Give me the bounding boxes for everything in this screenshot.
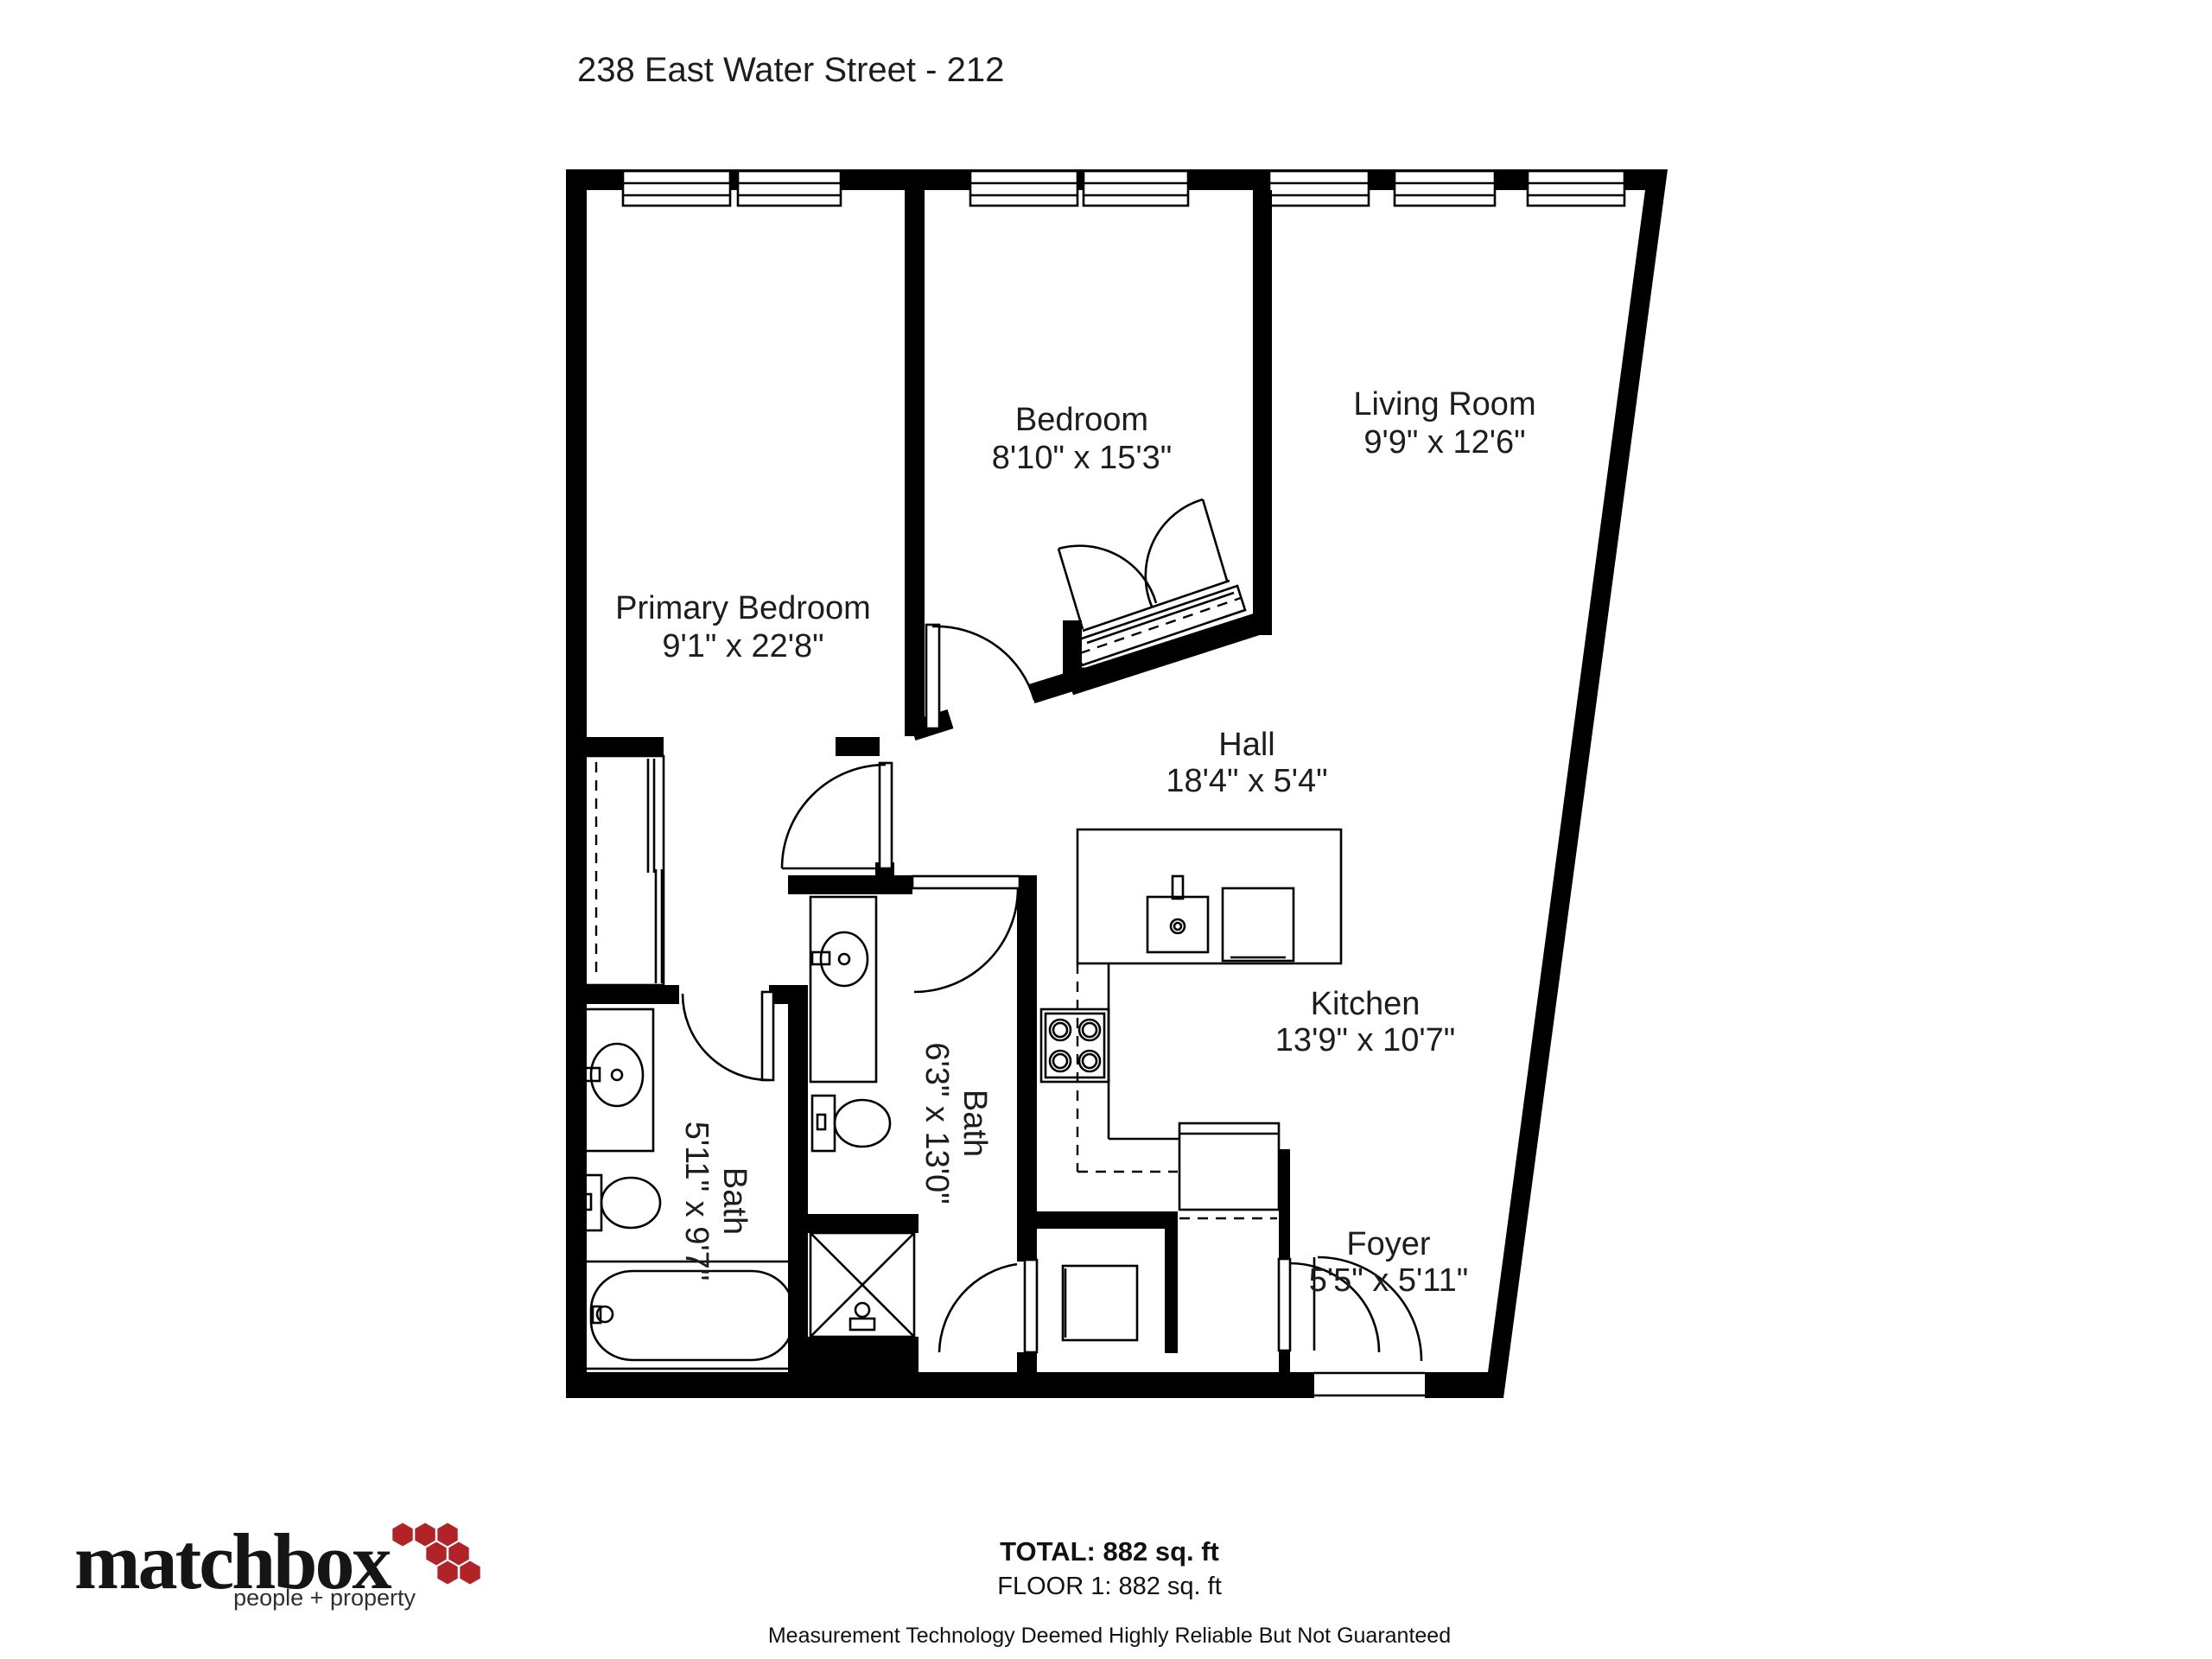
drain-icon [839,954,849,964]
footer-floor: FLOOR 1: 882 sq. ft [997,1573,1222,1600]
logo-tagline: people + property [233,1585,416,1611]
wall-primary-bedroom [905,190,925,736]
foyer-dims: 5'5" x 5'11" [1309,1262,1468,1299]
toilet-icon [601,1178,660,1228]
bedroom-dims: 8'10" x 15'3" [992,440,1172,476]
door-leaf [1025,1260,1037,1352]
logo: matchbox people + property [74,1517,480,1611]
door-arc [914,888,1018,992]
window [738,171,841,206]
hexagon-icon [437,1523,457,1547]
faucet-icon [1173,876,1183,899]
window [1269,171,1369,206]
window [623,171,730,206]
toilet-button [817,1115,825,1129]
door-hall-bath [912,876,1020,992]
door-leaf [762,992,773,1080]
floor-plan-canvas: 238 East Water Street - 212 [0,0,2212,1659]
vanity [810,897,876,1082]
door-arc [1146,499,1203,607]
wall-kitchen-west [1017,1352,1037,1372]
primary-bath-label-group: Bath 5'11" x 9'7" [678,1122,753,1281]
primary-bedroom-dims: 9'1" x 22'8" [662,628,823,664]
wall-foyer-stub [1279,1149,1290,1259]
door-leaf [912,876,1020,888]
wall-hall-bath-north [788,875,912,894]
drain-icon [1174,923,1181,930]
door-arc [782,765,886,868]
kitchen-counter [1077,829,1341,963]
hexagon-icon [460,1561,480,1585]
wall-closet-room-east [1165,1229,1178,1353]
door-leaf [880,763,892,868]
primary-bedroom-label: Primary Bedroom [615,590,871,626]
kitchen-sink-icon [1147,897,1208,952]
plan-title: 238 East Water Street - 212 [577,51,1004,89]
drain-icon [612,1070,622,1080]
door-leaf [1279,1259,1290,1351]
door-leaf-line [1058,549,1083,629]
hall-bath-dims: 6'3" x 13'0" [918,1042,955,1204]
refrigerator-icon [1179,1123,1279,1210]
hexagon-icon [448,1542,468,1566]
door-arc [932,626,1034,700]
drain-icon [1171,919,1185,933]
kitchen-label: Kitchen [1311,986,1421,1022]
toilet-tank [812,1096,835,1151]
door-leaf-line [1203,499,1227,581]
hall-label: Hall [1218,727,1274,763]
sink-icon [821,932,868,986]
wall-bath-top [566,985,679,1004]
window [1528,171,1624,206]
footer-disclaimer: Measurement Technology Deemed Highly Rel… [768,1624,1451,1648]
wall-primary-south [566,737,664,756]
shower-valve-icon [850,1319,874,1330]
hall-dims: 18'4" x 5'4" [1166,763,1327,799]
footer-total: TOTAL: 882 sq. ft [1000,1536,1219,1567]
floor-plan-page: 238 East Water Street - 212 [0,0,2212,1659]
dishwasher [1223,888,1294,961]
door-leaf [926,625,939,728]
door-primary-bedroom [782,763,892,868]
windows [623,171,1624,206]
primary-closet [577,756,664,985]
hexagon-icon [415,1523,435,1547]
living-room-label: Living Room [1353,386,1535,423]
kitchen-dims: 13'9" x 10'7" [1275,1022,1455,1058]
room-labels: Primary Bedroom 9'1" x 22'8" Bedroom 8'1… [615,386,1535,1299]
stove-icon [1041,1009,1109,1082]
wall-primary-south [836,737,880,756]
logo-hexagons-icon [392,1523,480,1585]
wall-bedroom-living [1253,190,1272,635]
wall-kitchen-west [1017,875,1037,1262]
hexagon-icon [392,1523,412,1547]
door-arc [683,994,769,1080]
bathtub-icon [591,1271,793,1360]
footer: TOTAL: 882 sq. ft FLOOR 1: 882 sq. ft Me… [768,1536,1451,1648]
door-primary-bath [683,992,773,1080]
wall-shower-north [808,1214,918,1233]
living-room-dims: 9'9" x 12'6" [1363,424,1525,461]
wall-hall-diagonal [1070,622,1263,684]
utility-appliance-icon [1063,1266,1137,1340]
hall-bath-label: Bath [957,1090,993,1157]
hall-bath-fixtures [810,897,914,1337]
window [970,171,1077,206]
shower-valve-icon [855,1303,869,1317]
hall-bath-label-group: Bath 6'3" x 13'0" [918,1042,993,1204]
window [1395,171,1495,206]
primary-bath-label: Bath [716,1167,753,1235]
foyer-label: Foyer [1346,1226,1430,1262]
window [1084,171,1188,206]
door-utility-closet [939,1260,1037,1352]
hexagon-icon [426,1542,446,1566]
closet-outline [577,756,664,985]
bedroom-label: Bedroom [1015,402,1148,438]
hexagon-icon [437,1561,457,1585]
wall-foyer-north [1017,1211,1178,1229]
wall-shower-south [808,1337,918,1372]
door-arc [939,1264,1017,1352]
primary-bath-dims: 5'11" x 9'7" [678,1122,715,1281]
toilet-icon [835,1100,890,1147]
